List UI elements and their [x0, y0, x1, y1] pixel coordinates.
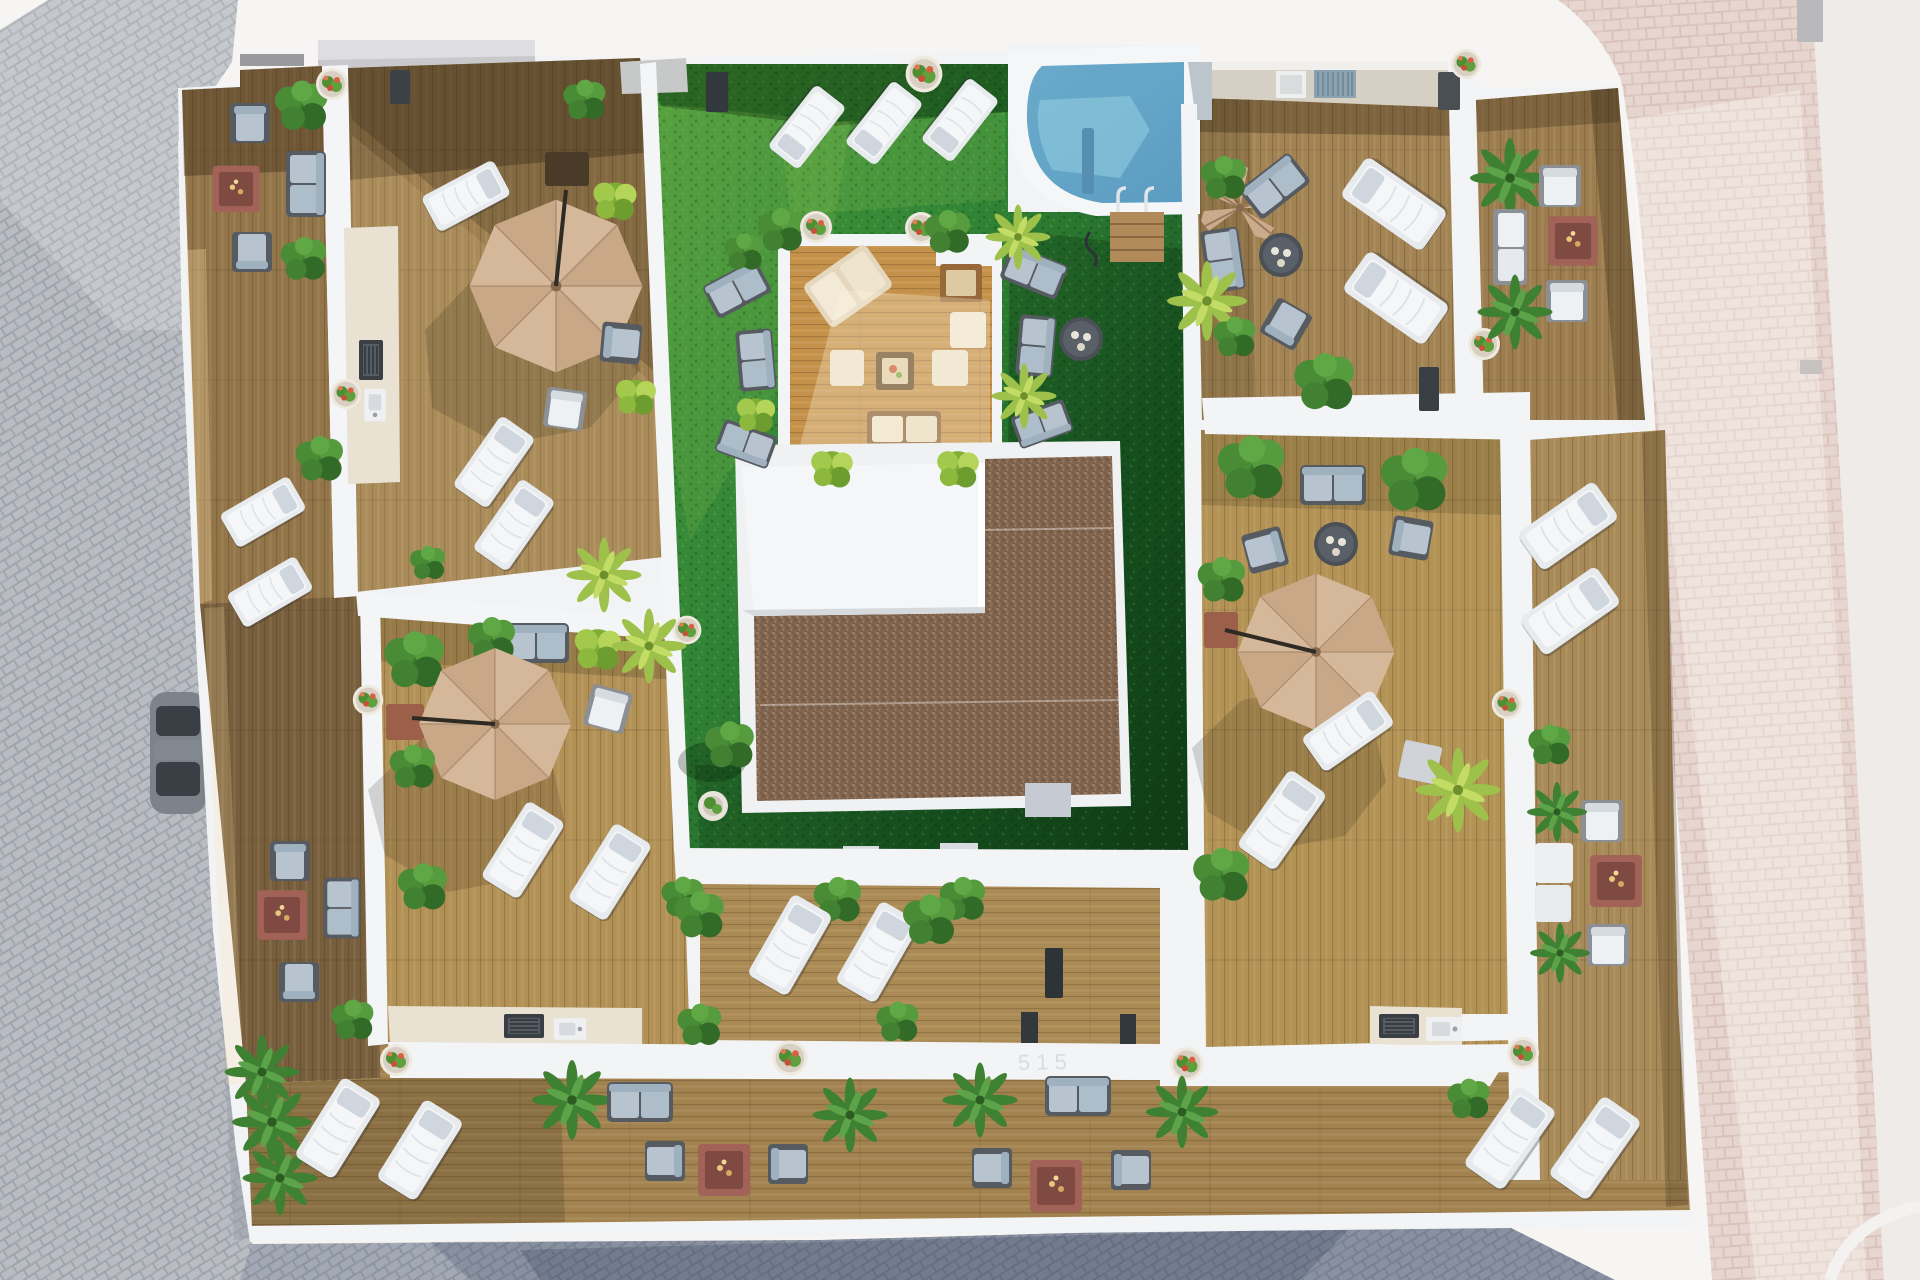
svg-text:5 1 5: 5 1 5 — [1018, 1049, 1067, 1075]
